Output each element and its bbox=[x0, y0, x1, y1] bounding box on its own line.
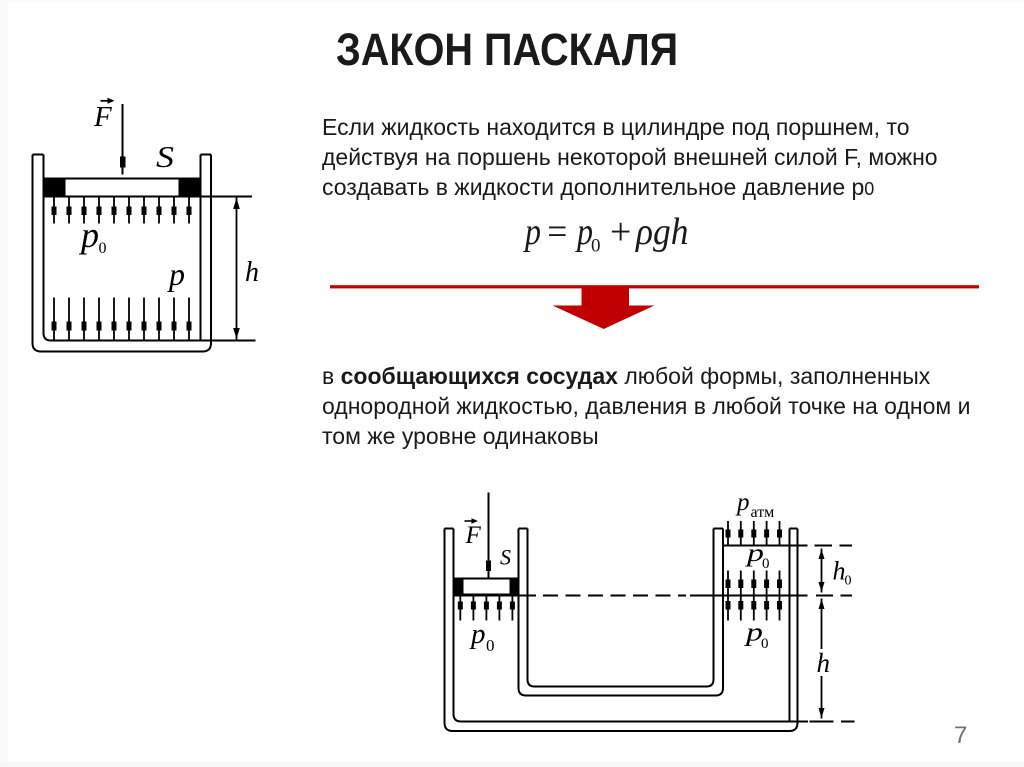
svg-text:0: 0 bbox=[845, 574, 852, 589]
svg-text:0: 0 bbox=[762, 556, 770, 572]
svg-text:F: F bbox=[93, 101, 112, 133]
svg-text:ρgh: ρgh bbox=[635, 211, 688, 253]
svg-text:p: p bbox=[78, 215, 99, 255]
svg-text:0: 0 bbox=[486, 636, 495, 655]
svg-text:S: S bbox=[500, 545, 511, 570]
svg-text:0: 0 bbox=[99, 240, 107, 257]
svg-text:S: S bbox=[156, 139, 174, 174]
svg-text:0: 0 bbox=[761, 636, 769, 652]
svg-text:p: p bbox=[735, 489, 750, 516]
svg-text:=: = bbox=[545, 211, 569, 253]
svg-text:p: p bbox=[469, 618, 486, 650]
svg-text:p: p bbox=[522, 211, 541, 253]
svg-text:атм: атм bbox=[751, 504, 775, 521]
svg-text:h: h bbox=[245, 256, 259, 288]
svg-text:F: F bbox=[465, 522, 482, 549]
svg-text:h: h bbox=[817, 648, 831, 678]
svg-text:0: 0 bbox=[591, 236, 601, 257]
svg-text:p: p bbox=[167, 256, 185, 292]
svg-text:+: + bbox=[608, 211, 634, 253]
